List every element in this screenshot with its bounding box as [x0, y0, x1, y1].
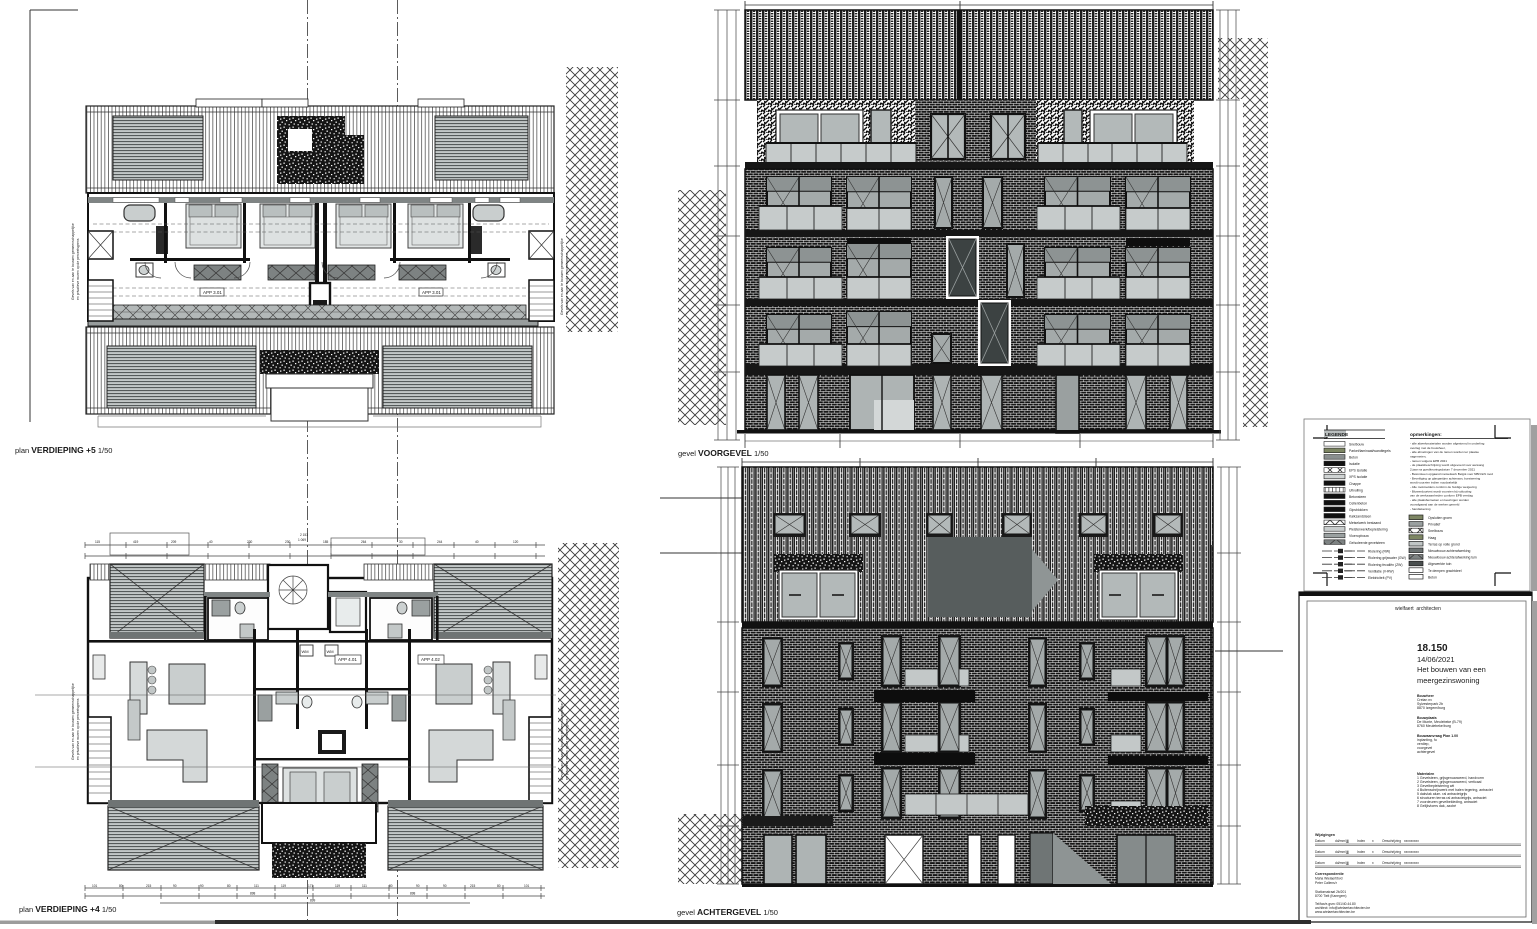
svg-text:Gevels van en aan te bouwen ge: Gevels van en aan te bouwen gemeenschapp… [71, 683, 75, 760]
svg-text:230: 230 [285, 540, 291, 544]
svg-text:171: 171 [308, 884, 314, 888]
svg-text:APP 4.02: APP 4.02 [421, 657, 440, 662]
svg-text:30: 30 [399, 540, 403, 544]
svg-text:Snelbouw: Snelbouw [1349, 443, 1364, 447]
svg-text:40: 40 [475, 540, 479, 544]
svg-text:80: 80 [119, 884, 123, 888]
svg-text:- alle afmetingen van de ramen: - alle afmetingen van de ramen worden te… [1410, 450, 1479, 454]
svg-text:419: 419 [133, 540, 139, 544]
svg-text:90: 90 [443, 884, 447, 888]
svg-text:209: 209 [171, 540, 177, 544]
svg-text:APP 4.01: APP 4.01 [338, 657, 357, 662]
svg-text:119: 119 [281, 884, 286, 888]
svg-text:898: 898 [410, 892, 416, 896]
svg-text:Omschrijving: Omschrijving [1382, 861, 1401, 865]
svg-text:EPS isolatie: EPS isolatie [1349, 469, 1367, 473]
svg-text:Gevels van en aan te bouwen ge: Gevels van en aan te bouwen gemeenschapp… [71, 223, 75, 300]
svg-text:Privatief: Privatief [1428, 523, 1440, 527]
svg-text:Gipsblokken: Gipsblokken [1349, 508, 1368, 512]
svg-text:APP 3.01: APP 3.01 [203, 290, 222, 295]
svg-text:Beton: Beton [1428, 575, 1437, 579]
svg-text:dd/mm/jjjj: dd/mm/jjjj [1335, 850, 1349, 854]
svg-text:40: 40 [209, 540, 213, 544]
svg-text:Kalkzandsteen: Kalkzandsteen [1349, 515, 1371, 519]
svg-text:- de plaatsbeschrijving wordt: - de plaatsbeschrijving wordt uitgevoerd… [1410, 463, 1484, 467]
svg-text:dd/mm/jjjj: dd/mm/jjjj [1335, 861, 1349, 865]
svg-text:80: 80 [227, 884, 231, 888]
svg-text:8700 Tielt (Kanegem): 8700 Tielt (Kanegem) [1315, 894, 1347, 898]
svg-text:- handtekening: - handtekening [1410, 507, 1431, 511]
svg-text:xxxxxxxxx: xxxxxxxxx [1404, 861, 1419, 865]
svg-text:Maha Wielaert/bvd: Maha Wielaert/bvd [1315, 877, 1343, 881]
svg-text:8760 Meulebeke/burg: 8760 Meulebeke/burg [1417, 724, 1451, 728]
svg-text:Afgewerkte tuin: Afgewerkte tuin [1428, 562, 1451, 566]
svg-text:Nieuwbouw achterafwerking: Nieuwbouw achterafwerking [1428, 549, 1471, 553]
svg-text:898: 898 [250, 892, 256, 896]
svg-text:Cellenbeton: Cellenbeton [1349, 501, 1367, 505]
svg-text:xxxxxxxxx: xxxxxxxxx [1404, 839, 1419, 843]
svg-text:WM: WM [302, 649, 309, 654]
svg-text:Ventilatie (V-RW): Ventilatie (V-RW) [1368, 569, 1394, 573]
svg-text:Snelbouw: Snelbouw [1428, 529, 1443, 533]
svg-text:119: 119 [335, 884, 340, 888]
svg-text:Datum: Datum [1315, 850, 1325, 854]
svg-text:- Betonsteen opgaand metselwer: - Betonsteen opgaand metselwerk België v… [1410, 472, 1493, 476]
svg-text:APP 3.01: APP 3.01 [422, 290, 441, 295]
svg-text:18.150: 18.150 [1417, 643, 1448, 654]
svg-text:120: 120 [513, 540, 519, 544]
svg-text:opmerkingen:: opmerkingen: [1410, 432, 1442, 438]
svg-text:Parket/laminaat/wandtegels: Parket/laminaat/wandtegels [1349, 449, 1391, 453]
svg-text:WM: WM [327, 649, 334, 654]
svg-text:LEGENDE: LEGENDE [1325, 432, 1349, 438]
svg-text:plan VERDIEPING +5 1/50: plan VERDIEPING +5 1/50 [15, 445, 112, 455]
svg-text:voorafgaand aan de werken geme: voorafgaand aan de werken gemeld [1410, 502, 1460, 506]
svg-text:Uitvulling: Uitvulling [1349, 488, 1363, 492]
svg-text:meergezinswoning: meergezinswoning [1417, 676, 1480, 685]
svg-text:Isolatie: Isolatie [1349, 462, 1360, 466]
svg-text:wielfaert architecten: wielfaert architecten [1395, 606, 1441, 612]
svg-text:Haag: Haag [1428, 536, 1436, 540]
svg-text:Betonsteen: Betonsteen [1349, 495, 1366, 499]
svg-text:Peter Callens/r: Peter Callens/r [1315, 881, 1338, 885]
svg-text:Geïsoleerde gevelsteen: Geïsoleerde gevelsteen [1349, 541, 1385, 545]
svg-text:Gevels van en aan te bouwen ge: Gevels van en aan te bouwen gemeenschapp… [560, 703, 564, 780]
svg-text:en privatieve muren op de perc: en privatieve muren op de perceelsgrens [76, 238, 80, 300]
svg-text:- Alle rookmelders conform de: - Alle rookmelders conform de huidige we… [1410, 485, 1477, 489]
svg-text:101: 101 [524, 884, 530, 888]
svg-text:90: 90 [200, 884, 204, 888]
svg-text:899: 899 [310, 899, 316, 903]
svg-text:Correspondentie: Correspondentie [1315, 872, 1344, 876]
svg-text:80: 80 [497, 884, 501, 888]
svg-text:Pleisterwerk/bepleistering: Pleisterwerk/bepleistering [1349, 528, 1388, 532]
svg-text:XPS isolatie: XPS isolatie [1349, 475, 1367, 479]
svg-text:www.wielaertarchitecten.be: www.wielaertarchitecten.be [1315, 910, 1355, 914]
svg-text:en privatieve muren op de perc: en privatieve muren op de perceelsgrens [565, 253, 569, 315]
svg-text:Riolering grijswater (GW): Riolering grijswater (GW) [1368, 556, 1406, 560]
svg-text:2 153: 2 153 [300, 533, 308, 537]
svg-text:244: 244 [437, 540, 443, 544]
svg-text:xxxxxxxxx: xxxxxxxxx [1404, 850, 1419, 854]
svg-text:1 069: 1 069 [298, 538, 306, 542]
svg-text:115: 115 [95, 540, 100, 544]
svg-text:dd/mm/jjjj: dd/mm/jjjj [1335, 839, 1349, 843]
svg-text:Omschrijving: Omschrijving [1382, 850, 1401, 854]
svg-text:14/06/2021: 14/06/2021 [1417, 655, 1455, 664]
svg-text:Wijzigingen: Wijzigingen [1315, 833, 1335, 837]
svg-text:185: 185 [323, 540, 329, 544]
svg-text:Nieuwbouw achterafwerking tuin: Nieuwbouw achterafwerking tuin [1428, 556, 1477, 560]
svg-text:8870 Izegem/burg: 8870 Izegem/burg [1417, 706, 1445, 710]
svg-text:Vloeropbouw: Vloeropbouw [1349, 534, 1369, 538]
svg-text:Chappe: Chappe [1349, 482, 1361, 486]
svg-text:Gevels van en aan te bouwen ge: Gevels van en aan te bouwen gemeenschapp… [560, 238, 564, 315]
svg-text:Datum: Datum [1315, 839, 1325, 843]
svg-text:90: 90 [416, 884, 420, 888]
svg-text:215: 215 [146, 884, 152, 888]
svg-text:90: 90 [173, 884, 177, 888]
svg-text:111: 111 [362, 884, 367, 888]
svg-text:Elektriciteit (PV): Elektriciteit (PV) [1368, 576, 1392, 580]
svg-text:wordt voorzien indien noodzake: wordt voorzien indien noodzakelijk [1410, 481, 1458, 485]
svg-text:111: 111 [254, 884, 259, 888]
svg-text:Metselwerk bestaand: Metselwerk bestaand [1349, 521, 1381, 525]
svg-text:8 Gelijkvloers dak, azobé: 8 Gelijkvloers dak, azobé [1417, 804, 1456, 808]
svg-text:101: 101 [92, 884, 98, 888]
svg-text:Riolering fecaliën (ZW): Riolering fecaliën (ZW) [1368, 563, 1402, 567]
svg-text:gevel VOORGEVEL 1/50: gevel VOORGEVEL 1/50 [678, 448, 769, 458]
svg-text:80: 80 [389, 884, 393, 888]
svg-text:Riolering (RW): Riolering (RW) [1368, 550, 1390, 554]
svg-text:- alle afwerkmaterialen worden: - alle afwerkmaterialen worden afgestemd… [1410, 442, 1485, 446]
svg-text:gevel ACHTERGEVEL 1/50: gevel ACHTERGEVEL 1/50 [677, 907, 778, 917]
svg-text:215: 215 [470, 884, 476, 888]
svg-text:Terras op volle grond: Terras op volle grond [1428, 542, 1460, 546]
svg-text:Beton: Beton [1349, 456, 1358, 460]
svg-text:Te dempen grachtdeel: Te dempen grachtdeel [1428, 569, 1462, 573]
svg-text:Opsluiten groen: Opsluiten groen [1428, 516, 1452, 520]
svg-text:en privatieve muren op de perc: en privatieve muren op de perceelsgrens [565, 718, 569, 780]
svg-text:Het bouwen van een: Het bouwen van een [1417, 665, 1486, 674]
svg-text:Omschrijving: Omschrijving [1382, 839, 1401, 843]
svg-text:Datum: Datum [1315, 861, 1325, 865]
svg-text:264: 264 [361, 540, 367, 544]
svg-text:en privatieve muren op de perc: en privatieve muren op de perceelsgrens [76, 698, 80, 760]
svg-text:Index: Index [1357, 839, 1365, 843]
svg-text:plan VERDIEPING +4 1/50: plan VERDIEPING +4 1/50 [19, 904, 116, 914]
svg-text:achtergevel: achtergevel [1417, 750, 1435, 754]
svg-text:Index: Index [1357, 850, 1365, 854]
svg-text:van de werkzaamheden conform E: van de werkzaamheden conform EPB verslag [1410, 494, 1473, 498]
svg-text:Index: Index [1357, 861, 1365, 865]
svg-text:230: 230 [247, 540, 253, 544]
